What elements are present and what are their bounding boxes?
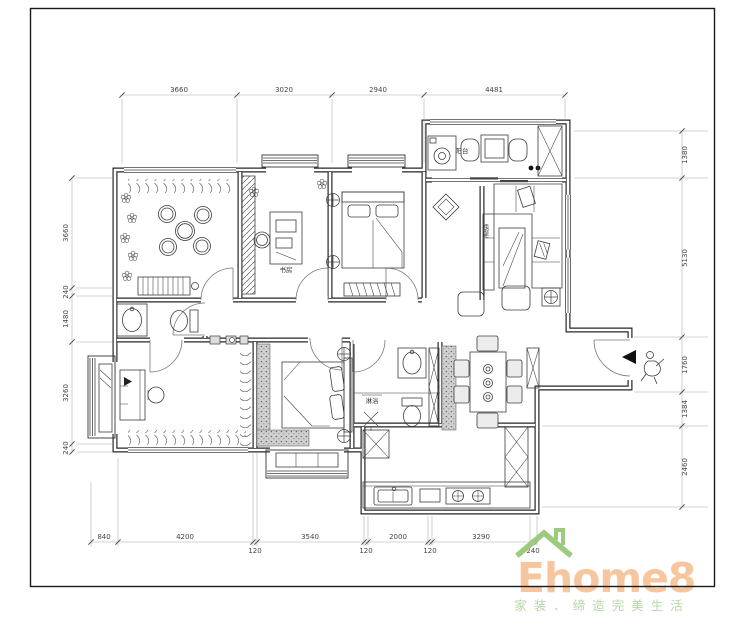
dim-label: 240 — [62, 441, 70, 454]
dim-label: 2000 — [389, 533, 407, 541]
bedside-light-icon — [338, 430, 351, 443]
dot — [529, 166, 534, 171]
dim-label: 3540 — [301, 533, 319, 541]
tv-cabinet-label: 电视柜 — [484, 223, 489, 239]
room-label-balcony: 阳台 — [456, 146, 469, 155]
dim-label: 4481 — [485, 86, 503, 94]
curtain — [128, 179, 232, 193]
dim-label: 840 — [97, 533, 110, 541]
dim-label: 2460 — [681, 458, 689, 476]
room-label-shower: 淋浴 — [366, 396, 380, 405]
dim-label: 1760 — [681, 356, 689, 374]
bedside-light-icon — [327, 194, 340, 207]
dim-label: 1380 — [681, 146, 689, 164]
bedside-light-icon — [338, 348, 351, 361]
dim-label: 3260 — [62, 384, 70, 402]
dim-label: 4200 — [176, 533, 194, 541]
logo-brand-text: Ehome8 — [517, 554, 695, 602]
bedside-light-icon — [327, 256, 340, 269]
dim-label: 1480 — [62, 310, 70, 328]
dim-label: 240 — [62, 285, 70, 298]
dim-label: 3290 — [472, 533, 490, 541]
dim-label: 1384 — [681, 400, 689, 418]
curtain — [128, 430, 246, 445]
feature-wall — [257, 430, 309, 446]
room-label-study: 书房 — [280, 265, 293, 274]
dim-label: 120 — [423, 547, 436, 555]
logo-tagline-text: 家装．缔造完美生活 — [514, 598, 690, 613]
dim-label: 2940 — [369, 86, 387, 94]
dim-label: 3660 — [62, 224, 70, 242]
wardrobe — [242, 176, 255, 294]
dim-label: 120 — [359, 547, 372, 555]
dim-label: 120 — [248, 547, 261, 555]
dim-label: 3020 — [275, 86, 293, 94]
floor-plan-svg: 书房 阳台 — [0, 0, 756, 630]
floor-plan-page: 书房 阳台 — [0, 0, 756, 630]
hall-niche — [210, 336, 248, 344]
dim-label: 3660 — [170, 86, 188, 94]
dim-label: 5130 — [681, 249, 689, 267]
